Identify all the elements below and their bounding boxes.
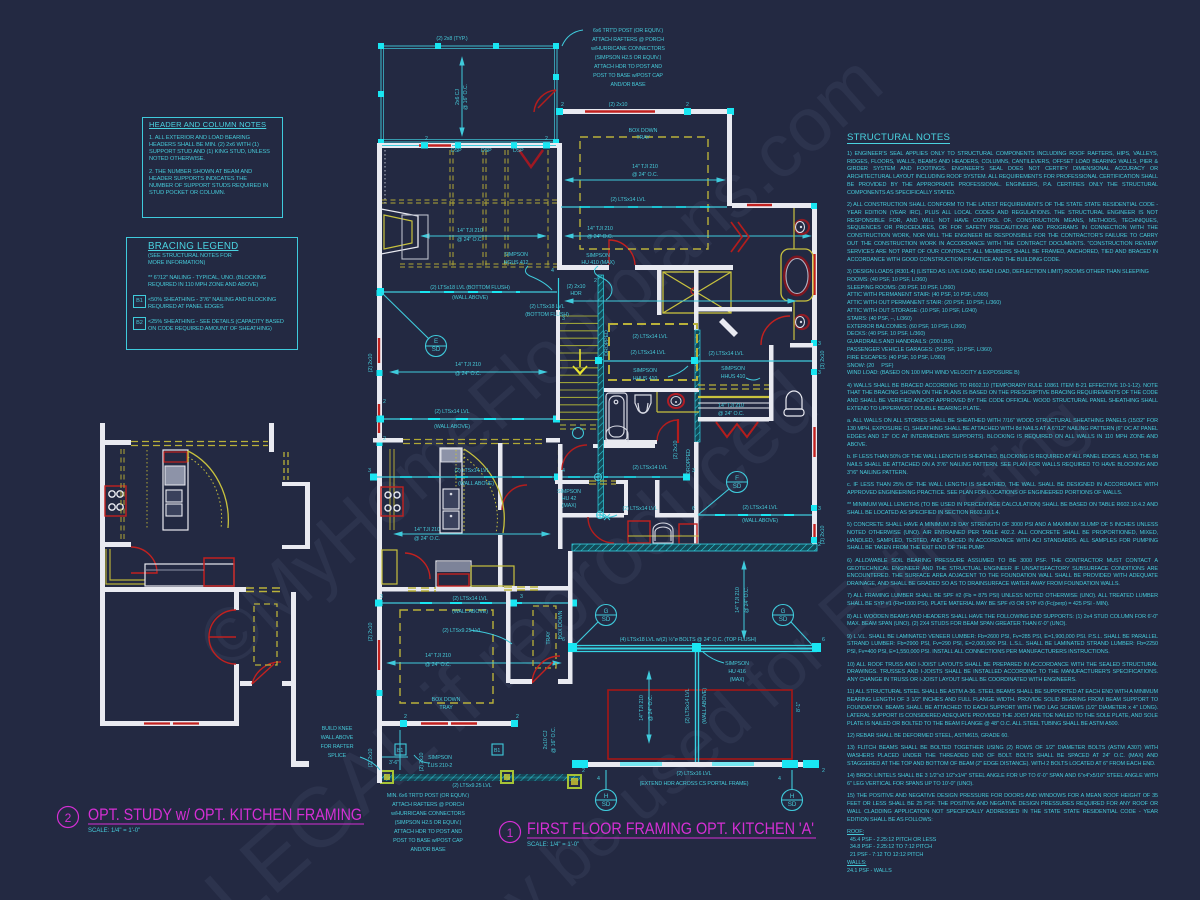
svg-text:(SIMPSON H2.5 OR EQUIV.): (SIMPSON H2.5 OR EQUIV.) — [595, 55, 662, 61]
svg-text:AND/OR BASE: AND/OR BASE — [610, 82, 646, 88]
svg-text:HGUS 412: HGUS 412 — [504, 260, 529, 266]
svg-text:DROPPED: DROPPED — [604, 330, 610, 356]
svg-text:3'-6": 3'-6" — [389, 760, 399, 766]
svg-text:SD: SD — [432, 346, 441, 353]
svg-text:8'-1": 8'-1" — [796, 702, 802, 712]
svg-text:(2) LTSx16 LVL: (2) LTSx16 LVL — [677, 771, 712, 777]
svg-text:2x10 CJ: 2x10 CJ — [543, 730, 549, 749]
svg-text:B1: B1 — [397, 748, 403, 754]
svg-text:(WALL ABOVE): (WALL ABOVE) — [742, 518, 778, 524]
svg-text:SIMPSON: SIMPSON — [725, 661, 749, 667]
svg-text:(4) LTSx18 LVL w/(2) ½"ø BOLTS: (4) LTSx18 LVL w/(2) ½"ø BOLTS @ 24" O.C… — [620, 636, 757, 643]
svg-text:SCALE: 1/4" = 1'-0": SCALE: 1/4" = 1'-0" — [88, 828, 140, 834]
svg-text:(2) LTSx14 LVL: (2) LTSx14 LVL — [623, 506, 658, 512]
svg-text:(3) 2x10: (3) 2x10 — [820, 351, 826, 370]
svg-text:(WALL ABOVE): (WALL ABOVE) — [452, 609, 488, 615]
svg-text:3: 3 — [562, 316, 565, 322]
svg-text:SIMPSON: SIMPSON — [428, 755, 452, 761]
svg-text:@ 24" O.C.: @ 24" O.C. — [632, 172, 658, 178]
svg-text:(2) LTSx14 LVL: (2) LTSx14 LVL — [709, 351, 744, 357]
svg-text:(2) LTSx14 LVL: (2) LTSx14 LVL — [611, 197, 646, 203]
svg-text:WALL ABOVE: WALL ABOVE — [321, 735, 354, 741]
svg-text:(WALL ABOVE): (WALL ABOVE) — [452, 295, 488, 301]
svg-text:SCALE: 1/4" = 1'-0": SCALE: 1/4" = 1'-0" — [527, 842, 579, 848]
svg-text:3: 3 — [368, 468, 371, 474]
svg-text:4: 4 — [562, 468, 565, 474]
svg-text:14" TJI 210: 14" TJI 210 — [414, 527, 440, 533]
svg-text:(2) 2x10: (2) 2x10 — [567, 284, 586, 290]
svg-text:3: 3 — [692, 468, 695, 474]
svg-text:2: 2 — [516, 714, 519, 720]
svg-text:(WALL ABOVE): (WALL ABOVE) — [702, 688, 708, 724]
svg-text:DSP: DSP — [451, 148, 462, 154]
svg-text:w/HURRICANE CONNECTORS: w/HURRICANE CONNECTORS — [391, 811, 465, 817]
svg-text:POST TO BASE w/POST CAP: POST TO BASE w/POST CAP — [593, 73, 663, 79]
svg-text:HHUS 410: HHUS 410 — [721, 374, 746, 380]
svg-text:@ 16" O.C.: @ 16" O.C. — [551, 727, 557, 753]
svg-text:6: 6 — [692, 506, 695, 512]
svg-text:14" TJI 210: 14" TJI 210 — [639, 695, 645, 721]
svg-text:2: 2 — [686, 102, 689, 108]
svg-text:HU 410 (MAX): HU 410 (MAX) — [581, 260, 615, 266]
svg-text:SIMPSON: SIMPSON — [586, 253, 610, 259]
svg-text:2: 2 — [545, 136, 548, 142]
svg-text:TRAY: TRAY — [546, 631, 552, 645]
svg-text:BOX DOWN: BOX DOWN — [629, 128, 658, 134]
svg-text:(2) 2x10: (2) 2x10 — [609, 102, 628, 108]
svg-text:SD: SD — [602, 616, 611, 623]
svg-text:4: 4 — [597, 776, 600, 782]
svg-text:(3) 2x10: (3) 2x10 — [820, 526, 826, 545]
svg-text:14" TJI 210: 14" TJI 210 — [457, 228, 483, 234]
svg-text:BOX DOWN: BOX DOWN — [558, 610, 564, 639]
svg-text:3: 3 — [818, 370, 821, 376]
svg-text:@ 24" O.C.: @ 24" O.C. — [455, 371, 481, 377]
svg-text:SD: SD — [779, 616, 788, 623]
svg-text:(2) 2x10: (2) 2x10 — [368, 354, 374, 373]
svg-text:(2) LTSx14 LVL: (2) LTSx14 LVL — [453, 596, 488, 602]
svg-text:14" TJI 210: 14" TJI 210 — [587, 226, 613, 232]
svg-text:SIMPSON: SIMPSON — [557, 489, 581, 495]
svg-text:B1: B1 — [494, 748, 500, 754]
svg-text:H: H — [604, 793, 608, 800]
svg-text:2: 2 — [561, 102, 564, 108]
svg-text:(SIMPSON H2.5 OR EQUIV.): (SIMPSON H2.5 OR EQUIV.) — [395, 820, 462, 826]
svg-text:G: G — [781, 608, 786, 615]
svg-text:14" TJI 210: 14" TJI 210 — [718, 403, 744, 409]
svg-text:ATTACH HDR TO POST AND: ATTACH HDR TO POST AND — [594, 64, 662, 70]
svg-text:(2) LTSx14 LVL: (2) LTSx14 LVL — [633, 334, 668, 340]
svg-text:(WALL ABOVE): (WALL ABOVE) — [434, 424, 470, 430]
svg-text:ATTACH RAFTERS @ PORCH: ATTACH RAFTERS @ PORCH — [592, 37, 664, 43]
svg-text:@ 24" O.C.: @ 24" O.C. — [718, 411, 744, 417]
svg-text:DSP: DSP — [481, 148, 492, 154]
svg-text:F: F — [735, 475, 739, 482]
svg-text:(WALL ABOVE): (WALL ABOVE) — [458, 481, 494, 487]
svg-text:FIRST FLOOR FRAMING OPT. KITCH: FIRST FLOOR FRAMING OPT. KITCHEN 'A' — [527, 819, 814, 838]
svg-text:SIMPSON: SIMPSON — [633, 368, 657, 374]
svg-text:w/HURRICANE CONNECTORS: w/HURRICANE CONNECTORS — [591, 46, 665, 52]
svg-text:@ 16" O.C.: @ 16" O.C. — [463, 84, 469, 110]
svg-text:(2) LTSx14 LVL: (2) LTSx14 LVL — [435, 409, 470, 415]
svg-text:@ 24" O.C.: @ 24" O.C. — [648, 695, 654, 721]
svg-text:2: 2 — [383, 436, 386, 442]
svg-text:(2) LTSx14 LVL: (2) LTSx14 LVL — [633, 465, 668, 471]
svg-text:SIMPSON: SIMPSON — [721, 366, 745, 372]
svg-text:3: 3 — [520, 594, 523, 600]
svg-text:SD: SD — [602, 801, 611, 808]
svg-text:G: G — [604, 608, 609, 615]
svg-text:FOR RAFTER: FOR RAFTER — [321, 744, 354, 750]
svg-text:4: 4 — [551, 268, 554, 274]
svg-text:DSP: DSP — [513, 148, 524, 154]
svg-text:(2) LTSx18 LVL: (2) LTSx18 LVL — [530, 304, 565, 310]
svg-text:HU 42: HU 42 — [562, 496, 577, 502]
svg-text:TRAY: TRAY — [439, 705, 453, 711]
svg-text:(2) LTSx9.25 LVL: (2) LTSx9.25 LVL — [452, 783, 491, 789]
svg-text:(MAX): (MAX) — [562, 503, 577, 509]
svg-text:H: H — [790, 793, 794, 800]
svg-text:(MAX): (MAX) — [730, 677, 745, 683]
svg-text:(2) LTSx18 LVL (BOTTOM FLUSH): (2) LTSx18 LVL (BOTTOM FLUSH) — [430, 285, 510, 291]
svg-text:OPT. STUDY w/ OPT. KITCHEN FRA: OPT. STUDY w/ OPT. KITCHEN FRAMING — [88, 805, 362, 824]
svg-text:@ 24" O.C.: @ 24" O.C. — [414, 536, 440, 542]
svg-text:(2) 2x8 (TYP.): (2) 2x8 (TYP.) — [436, 36, 468, 42]
svg-text:1: 1 — [507, 826, 514, 840]
svg-text:14" TJI 210: 14" TJI 210 — [735, 587, 741, 613]
svg-text:@ 24" O.C.: @ 24" O.C. — [744, 587, 750, 613]
svg-text:(2) 2x10: (2) 2x10 — [368, 623, 374, 642]
svg-text:ATTACH RAFTERS @ PORCH: ATTACH RAFTERS @ PORCH — [392, 802, 464, 808]
svg-text:SPLICE: SPLICE — [328, 753, 347, 759]
svg-text:2: 2 — [582, 768, 585, 774]
svg-text:@ 24" O.C.: @ 24" O.C. — [587, 234, 613, 240]
svg-text:(2) LTSx14 LVL: (2) LTSx14 LVL — [743, 505, 778, 511]
svg-text:SD: SD — [733, 483, 742, 490]
svg-text:HHUS 410: HHUS 410 — [633, 376, 658, 382]
svg-text:3: 3 — [818, 341, 821, 347]
svg-text:(2) 2x10: (2) 2x10 — [368, 749, 374, 768]
svg-text:MIN. 6x6 TRT'D POST (OR EQUIV.: MIN. 6x6 TRT'D POST (OR EQUIV.) — [387, 793, 470, 799]
svg-text:14" TJI 210: 14" TJI 210 — [632, 164, 658, 170]
svg-text:@ 24" O.C.: @ 24" O.C. — [457, 237, 483, 243]
svg-text:2: 2 — [404, 714, 407, 720]
svg-text:2x6 CJ: 2x6 CJ — [455, 89, 461, 105]
svg-text:4: 4 — [778, 776, 781, 782]
svg-text:6: 6 — [822, 637, 825, 643]
svg-text:E: E — [434, 338, 438, 345]
svg-text:3: 3 — [818, 506, 821, 512]
svg-text:2: 2 — [383, 399, 386, 405]
svg-text:SIMPSON: SIMPSON — [504, 252, 528, 258]
svg-text:BOX DOWN: BOX DOWN — [432, 697, 461, 703]
svg-text:2: 2 — [425, 136, 428, 142]
svg-text:(2) LTSx14 LVL: (2) LTSx14 LVL — [631, 350, 666, 356]
svg-text:DROPPED: DROPPED — [686, 449, 692, 475]
svg-text:AND/OR BASE: AND/OR BASE — [410, 847, 446, 853]
svg-text:(EXTEND HDR ACROSS CS PORTAL F: (EXTEND HDR ACROSS CS PORTAL FRAME) — [640, 781, 749, 787]
svg-text:LUS 210-2: LUS 210-2 — [428, 763, 453, 769]
svg-text:@ 24" O.C.: @ 24" O.C. — [425, 662, 451, 668]
svg-text:14" TJI 210: 14" TJI 210 — [455, 362, 481, 368]
svg-text:POST TO BASE w/POST CAP: POST TO BASE w/POST CAP — [393, 838, 463, 844]
svg-text:(2) LTSx14 LVL: (2) LTSx14 LVL — [685, 688, 691, 723]
svg-text:2: 2 — [594, 278, 597, 284]
svg-text:14" TJI 210: 14" TJI 210 — [425, 653, 451, 659]
svg-text:SD: SD — [788, 801, 797, 808]
svg-text:2: 2 — [822, 768, 825, 774]
svg-text:HDR: HDR — [570, 291, 581, 297]
svg-text:(2) 2x10: (2) 2x10 — [673, 441, 679, 460]
svg-text:(2) LTSx14 LVL: (2) LTSx14 LVL — [455, 468, 490, 474]
svg-text:TRAY: TRAY — [636, 135, 650, 141]
svg-text:3: 3 — [380, 594, 383, 600]
svg-text:6x6 TRT'D POST (OR EQUIV.): 6x6 TRT'D POST (OR EQUIV.) — [593, 28, 663, 34]
svg-text:2: 2 — [65, 811, 72, 825]
svg-text:ATTACH HDR TO POST AND: ATTACH HDR TO POST AND — [394, 829, 462, 835]
svg-text:BUILD KNEE: BUILD KNEE — [322, 726, 353, 732]
svg-text:HU 416: HU 416 — [728, 669, 746, 675]
